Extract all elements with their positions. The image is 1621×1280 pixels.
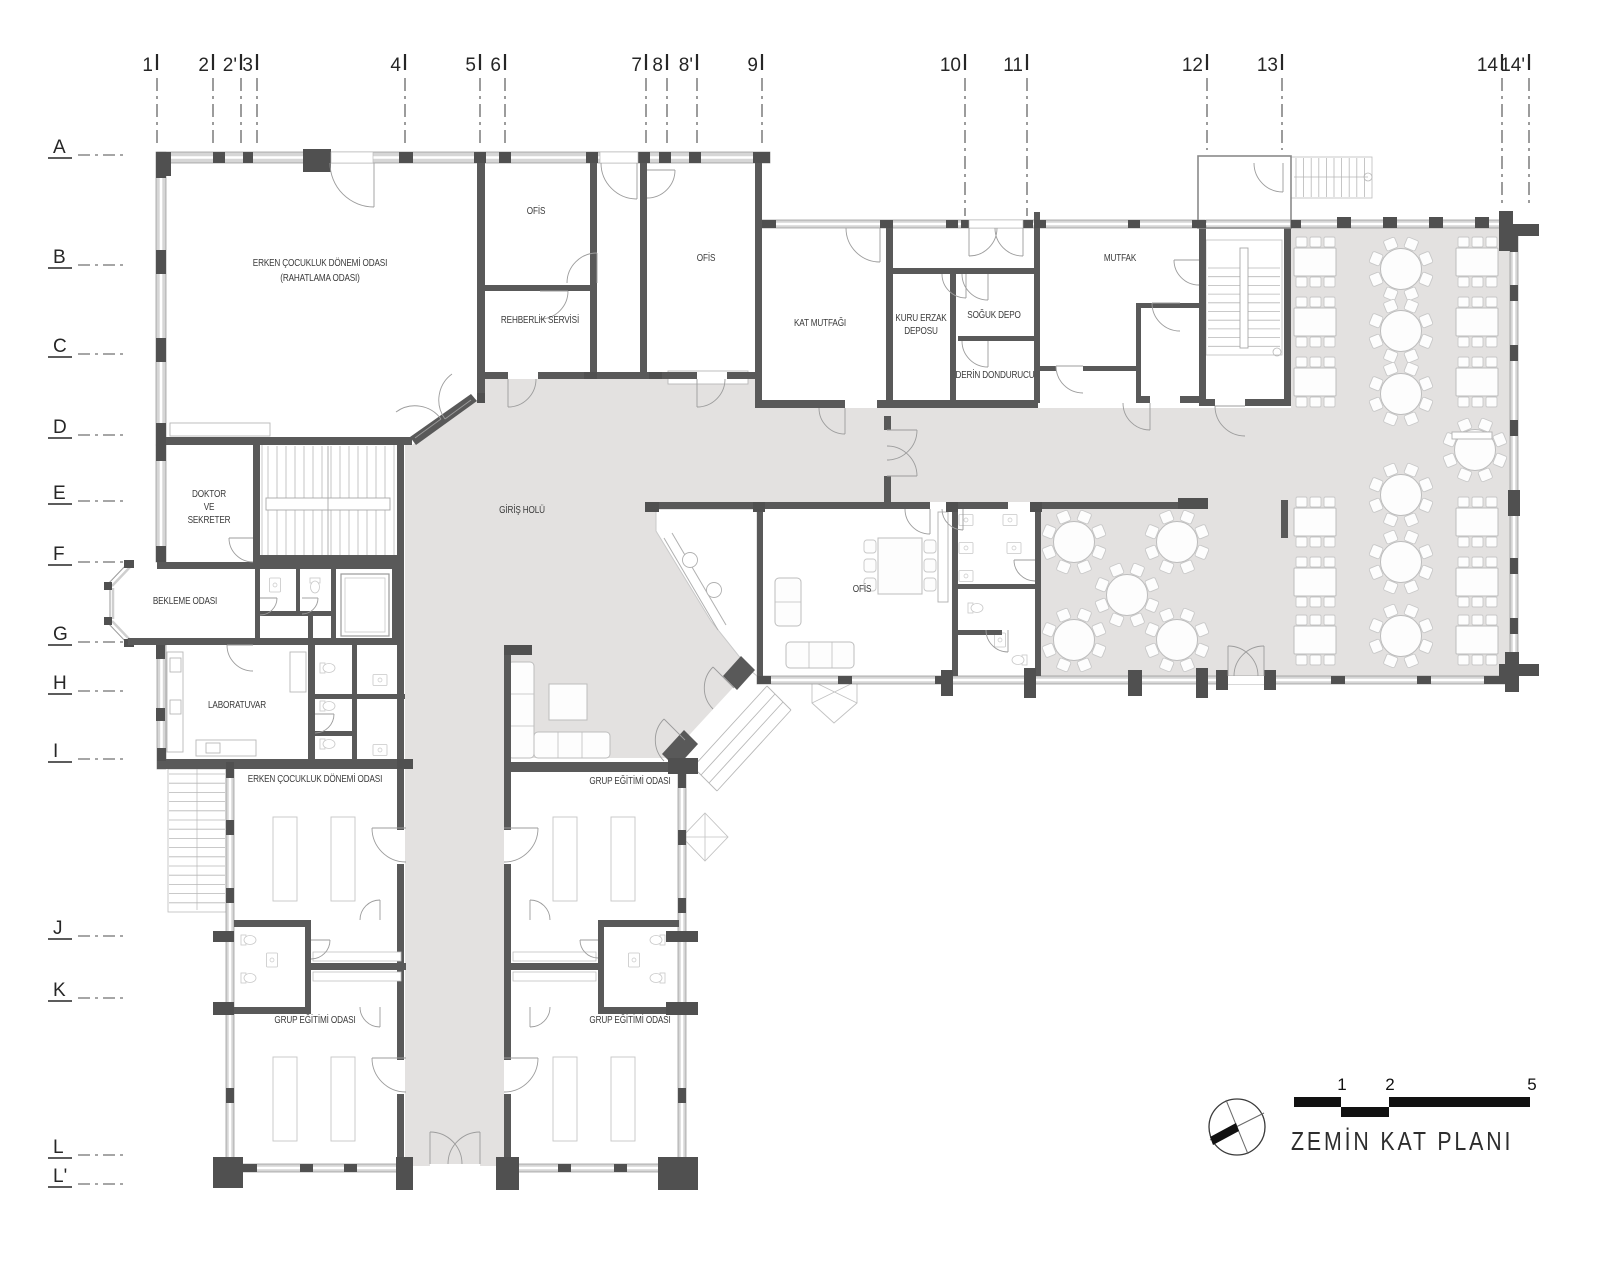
svg-text:OFİS: OFİS [853, 582, 871, 594]
svg-text:C: C [53, 336, 67, 357]
svg-text:G: G [53, 624, 68, 645]
svg-text:4: 4 [390, 55, 401, 76]
svg-text:OFİS: OFİS [527, 204, 545, 216]
svg-text:2: 2 [1385, 1075, 1394, 1094]
svg-text:ERKEN ÇOCUKLUK DÖNEMİ ODASI: ERKEN ÇOCUKLUK DÖNEMİ ODASI [248, 772, 382, 784]
svg-text:2: 2 [198, 55, 209, 76]
svg-text:J: J [53, 918, 63, 939]
svg-text:5: 5 [465, 55, 476, 76]
svg-text:GRUP EĞİTİMİ ODASI: GRUP EĞİTİMİ ODASI [589, 1013, 670, 1025]
svg-text:2': 2' [223, 55, 237, 76]
svg-text:13: 13 [1257, 55, 1278, 76]
svg-text:BEKLEME ODASI: BEKLEME ODASI [153, 594, 217, 606]
svg-text:GRUP EĞİTİMİ ODASI: GRUP EĞİTİMİ ODASI [589, 774, 670, 786]
svg-text:H: H [53, 673, 67, 694]
svg-text:K: K [53, 980, 66, 1001]
svg-text:OFİS: OFİS [697, 251, 715, 263]
svg-text:ZEMİN KAT PLANI: ZEMİN KAT PLANI [1291, 1127, 1513, 1157]
svg-text:10: 10 [940, 55, 961, 76]
svg-text:8: 8 [652, 55, 663, 76]
svg-text:ERKEN ÇOCUKLUK DÖNEMİ ODASI: ERKEN ÇOCUKLUK DÖNEMİ ODASI [253, 256, 387, 268]
svg-text:SOĞUK DEPO: SOĞUK DEPO [967, 308, 1020, 320]
svg-text:5: 5 [1527, 1075, 1536, 1094]
svg-text:KAT MUTFAĞI: KAT MUTFAĞI [794, 316, 846, 328]
svg-text:7: 7 [631, 55, 642, 76]
svg-text:9: 9 [747, 55, 758, 76]
svg-text:DEPOSU: DEPOSU [904, 324, 938, 336]
svg-text:GİRİŞ HOLÜ: GİRİŞ HOLÜ [499, 503, 545, 515]
svg-text:REHBERLİK SERVİSİ: REHBERLİK SERVİSİ [501, 313, 579, 325]
svg-text:I: I [53, 741, 58, 762]
svg-text:L: L [53, 1137, 64, 1158]
svg-text:14': 14' [1500, 55, 1525, 76]
svg-text:D: D [53, 417, 67, 438]
svg-text:KURU ERZAK: KURU ERZAK [895, 311, 947, 323]
svg-text:A: A [53, 137, 66, 158]
svg-text:8': 8' [679, 55, 693, 76]
svg-text:3: 3 [242, 55, 253, 76]
svg-text:12: 12 [1182, 55, 1203, 76]
svg-text:SEKRETER: SEKRETER [188, 513, 231, 525]
svg-text:1: 1 [142, 55, 153, 76]
svg-text:GRUP EĞİTİMİ ODASI: GRUP EĞİTİMİ ODASI [274, 1013, 355, 1025]
svg-text:1: 1 [1337, 1075, 1346, 1094]
svg-text:E: E [53, 483, 66, 504]
svg-text:L': L' [53, 1166, 67, 1187]
svg-text:B: B [53, 247, 66, 268]
svg-text:F: F [53, 544, 65, 565]
svg-text:MUTFAK: MUTFAK [1104, 251, 1137, 263]
svg-text:DOKTOR: DOKTOR [192, 487, 226, 499]
svg-text:DERİN DONDURUCU: DERİN DONDURUCU [955, 368, 1034, 380]
svg-text:VE: VE [204, 500, 215, 512]
svg-text:(RAHATLAMA ODASI): (RAHATLAMA ODASI) [280, 271, 360, 283]
svg-text:11: 11 [1003, 55, 1023, 76]
svg-text:LABORATUVAR: LABORATUVAR [208, 698, 266, 710]
svg-text:6: 6 [490, 55, 501, 76]
svg-text:14: 14 [1477, 55, 1499, 76]
